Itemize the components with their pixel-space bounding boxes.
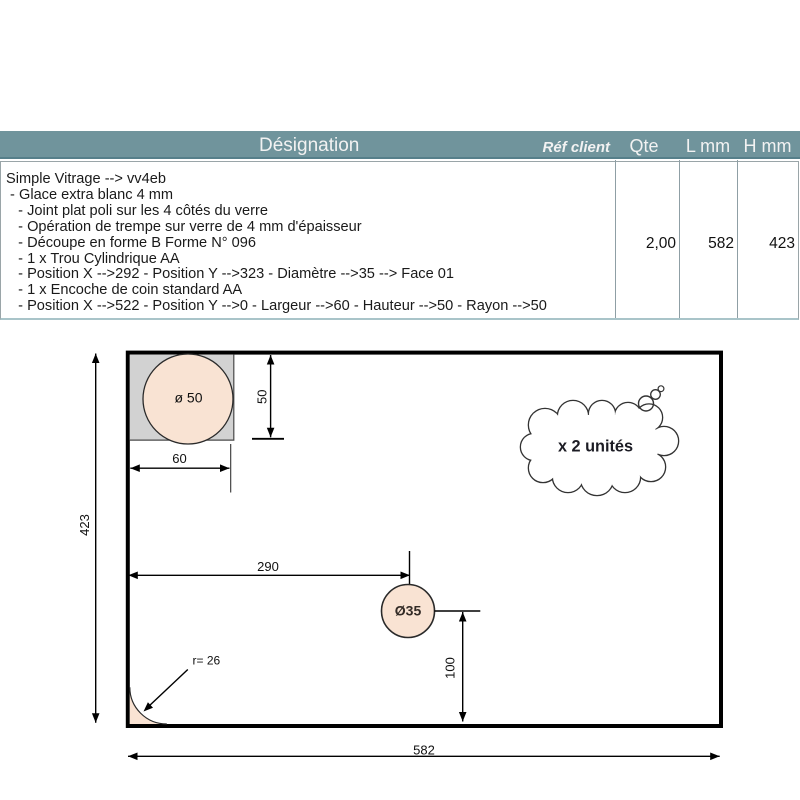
svg-text:290: 290 (257, 559, 279, 574)
svg-text:x 2 unités: x 2 unités (558, 438, 633, 456)
svg-text:ø 50: ø 50 (174, 390, 202, 406)
svg-text:582: 582 (413, 743, 435, 758)
svg-text:r= 26: r= 26 (193, 654, 221, 668)
svg-text:423: 423 (77, 514, 92, 536)
svg-text:Ø35: Ø35 (395, 603, 422, 619)
svg-text:60: 60 (172, 451, 186, 466)
svg-text:100: 100 (443, 657, 458, 679)
svg-text:50: 50 (254, 389, 269, 403)
